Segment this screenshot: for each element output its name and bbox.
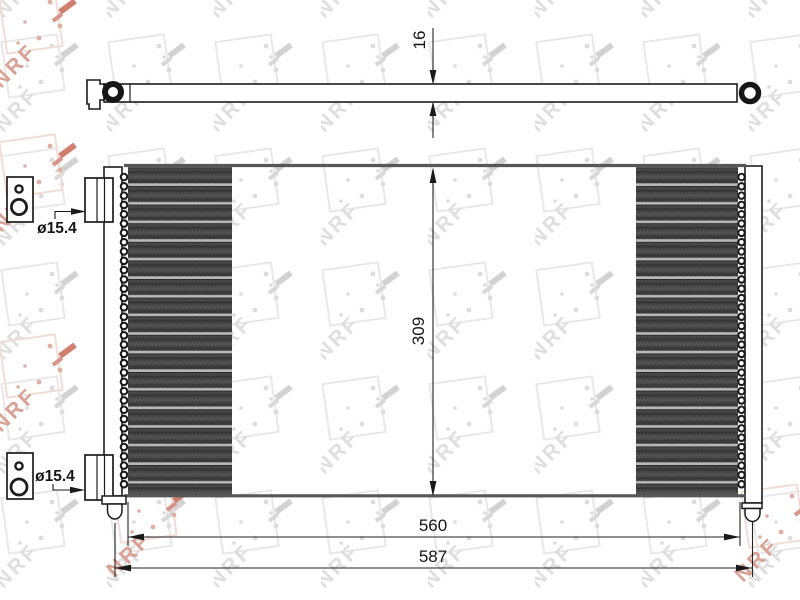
- top-view-left-ring: [105, 84, 121, 100]
- dim-core-height-label: 309: [409, 317, 428, 345]
- top-view-right-ring: [742, 85, 759, 102]
- condenser-drawing: NRF NRF: [0, 0, 800, 600]
- port-diameter-bottom-label: ø15.4: [35, 468, 75, 485]
- outlet-block-bottom: [85, 455, 113, 500]
- fitting-plate-bottom: [7, 453, 33, 499]
- core-fins-right: [636, 167, 738, 495]
- technical-drawing-page: NRF NRF: [0, 0, 800, 600]
- fitting-plate-top: [7, 177, 33, 222]
- core-fins-left: [128, 167, 232, 495]
- inlet-block-top: [85, 178, 113, 222]
- port-diameter-top-label: ø15.4: [37, 220, 77, 237]
- dim-bar-thickness-label: 16: [410, 31, 429, 50]
- dim-overall-width-label: 587: [419, 547, 447, 566]
- right-tank: [745, 166, 762, 503]
- dim-core-width-label: 560: [419, 516, 447, 535]
- top-view-bar: [104, 84, 737, 102]
